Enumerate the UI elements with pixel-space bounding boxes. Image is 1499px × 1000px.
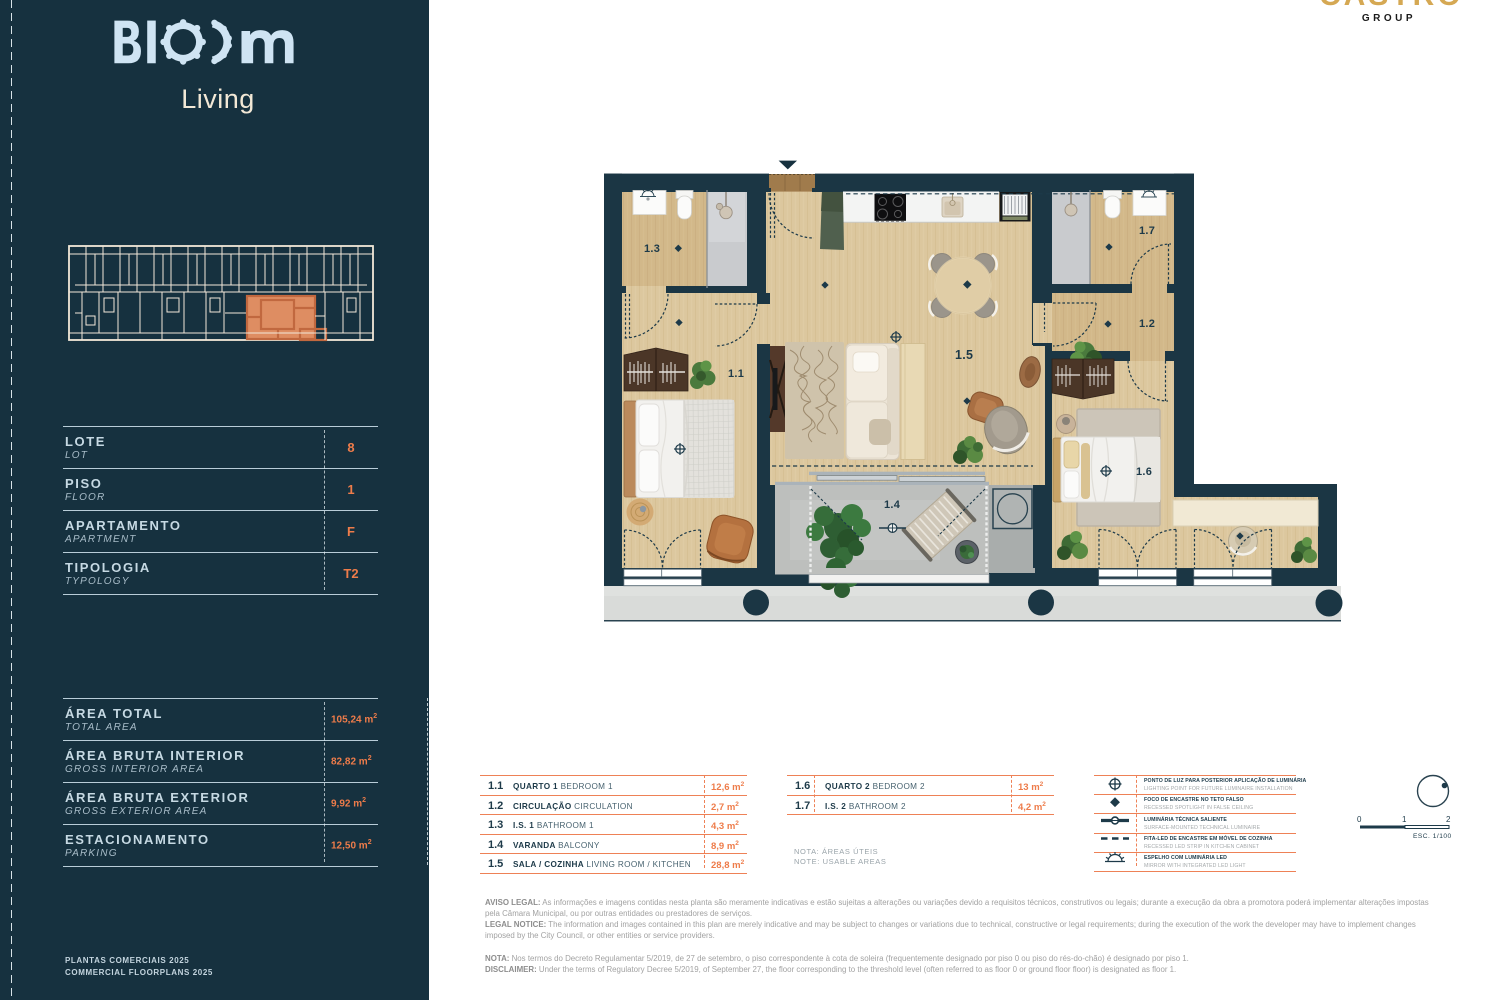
- svg-text:2: 2: [1446, 815, 1451, 824]
- svg-text:1.2: 1.2: [1139, 318, 1155, 330]
- svg-text:0: 0: [1357, 815, 1362, 824]
- svg-text:ESC. 1/100: ESC. 1/100: [1413, 833, 1452, 840]
- svg-text:1.7: 1.7: [1139, 225, 1155, 237]
- svg-text:1.6: 1.6: [1136, 466, 1152, 478]
- svg-text:1.1: 1.1: [728, 368, 744, 380]
- svg-text:1.5: 1.5: [955, 348, 973, 362]
- svg-text:1.3: 1.3: [644, 243, 660, 255]
- svg-text:1.4: 1.4: [884, 499, 901, 511]
- svg-text:1: 1: [1402, 815, 1407, 824]
